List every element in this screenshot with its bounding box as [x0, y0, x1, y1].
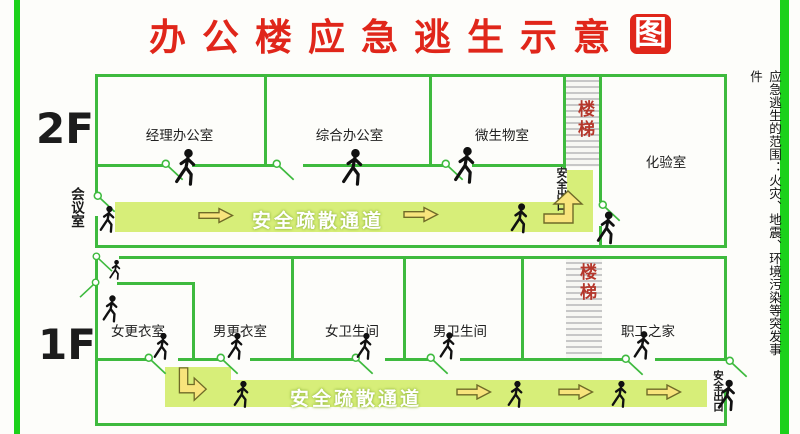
walking-person-icon — [108, 260, 123, 280]
corridor-label-2f: 安全疏散通道 — [252, 206, 384, 233]
stairs-label-2f: 楼梯 — [572, 100, 597, 140]
walking-person-icon — [152, 333, 172, 360]
wall — [655, 358, 727, 361]
wall — [119, 256, 727, 259]
room-label-laboratory: 化验室 — [612, 151, 720, 171]
walking-person-icon — [173, 149, 200, 186]
door-swing-icon — [272, 159, 298, 185]
walking-person-icon — [506, 381, 526, 408]
wall — [429, 74, 432, 167]
bent-down-arrow-icon — [172, 366, 209, 403]
wall — [95, 245, 727, 248]
room-label-microbiology-room: 微生物室 — [443, 124, 561, 144]
walking-person-icon — [452, 147, 479, 184]
wall — [95, 164, 167, 167]
title-seal: 图 — [630, 14, 671, 53]
evacuation-sign: 办公楼应急逃生示意图 2F 1F 楼梯 经理办公室 综合办公室 微生物室 化验室… — [0, 0, 800, 434]
wall — [472, 164, 566, 167]
emergency-scope-note: 应急逃生的范围：火灾、地震、环境污染等突发事件 — [746, 70, 784, 360]
wall — [291, 256, 294, 361]
wall — [303, 164, 447, 167]
walking-person-icon — [716, 379, 739, 412]
bent-up-arrow-icon — [541, 189, 593, 231]
wall — [192, 164, 278, 167]
wall — [563, 74, 566, 169]
floor-2-label: 2F — [36, 104, 94, 153]
wall — [724, 256, 727, 360]
right-arrow-icon — [198, 207, 234, 224]
title-text: 办公楼应急逃生示意 — [149, 7, 626, 61]
wall — [385, 358, 432, 361]
frame-left-edge — [14, 0, 20, 434]
walking-person-icon — [101, 295, 121, 323]
wall — [724, 74, 727, 248]
corridor-label-1f: 安全疏散通道 — [290, 384, 422, 411]
right-arrow-icon — [456, 384, 492, 400]
wall — [95, 74, 98, 195]
wall — [403, 256, 406, 361]
room-label-general-office: 综合办公室 — [282, 124, 417, 144]
room-label-men-restroom: 男卫生间 — [412, 320, 508, 340]
walking-person-icon — [632, 331, 653, 360]
walking-person-icon — [610, 381, 630, 408]
walking-person-icon — [226, 333, 246, 360]
walking-person-icon — [98, 206, 118, 233]
walking-person-icon — [232, 381, 252, 408]
room-label-meeting-room: 会议室 — [66, 187, 86, 228]
walking-person-icon — [509, 203, 531, 234]
page-title: 办公楼应急逃生示意图 — [100, 8, 720, 60]
right-arrow-icon — [558, 384, 594, 400]
floor-1-label: 1F — [38, 320, 96, 369]
room-label-manager-office: 经理办公室 — [112, 124, 247, 144]
wall — [95, 358, 150, 361]
wall — [521, 256, 524, 361]
wall — [264, 74, 267, 167]
stairs-label-1f: 楼梯 — [574, 263, 599, 303]
walking-person-icon — [438, 332, 458, 360]
right-arrow-icon — [646, 384, 682, 400]
room-label-women-restroom: 女卫生间 — [304, 320, 400, 340]
walking-person-icon — [340, 149, 367, 186]
right-arrow-icon — [403, 206, 439, 223]
walking-person-icon — [355, 333, 375, 360]
wall — [460, 358, 627, 361]
door-swing-icon — [76, 278, 100, 302]
wall — [117, 282, 192, 285]
wall — [95, 74, 727, 77]
wall — [95, 423, 727, 426]
wall — [250, 358, 357, 361]
walking-person-icon — [595, 211, 619, 245]
wall — [599, 74, 602, 202]
